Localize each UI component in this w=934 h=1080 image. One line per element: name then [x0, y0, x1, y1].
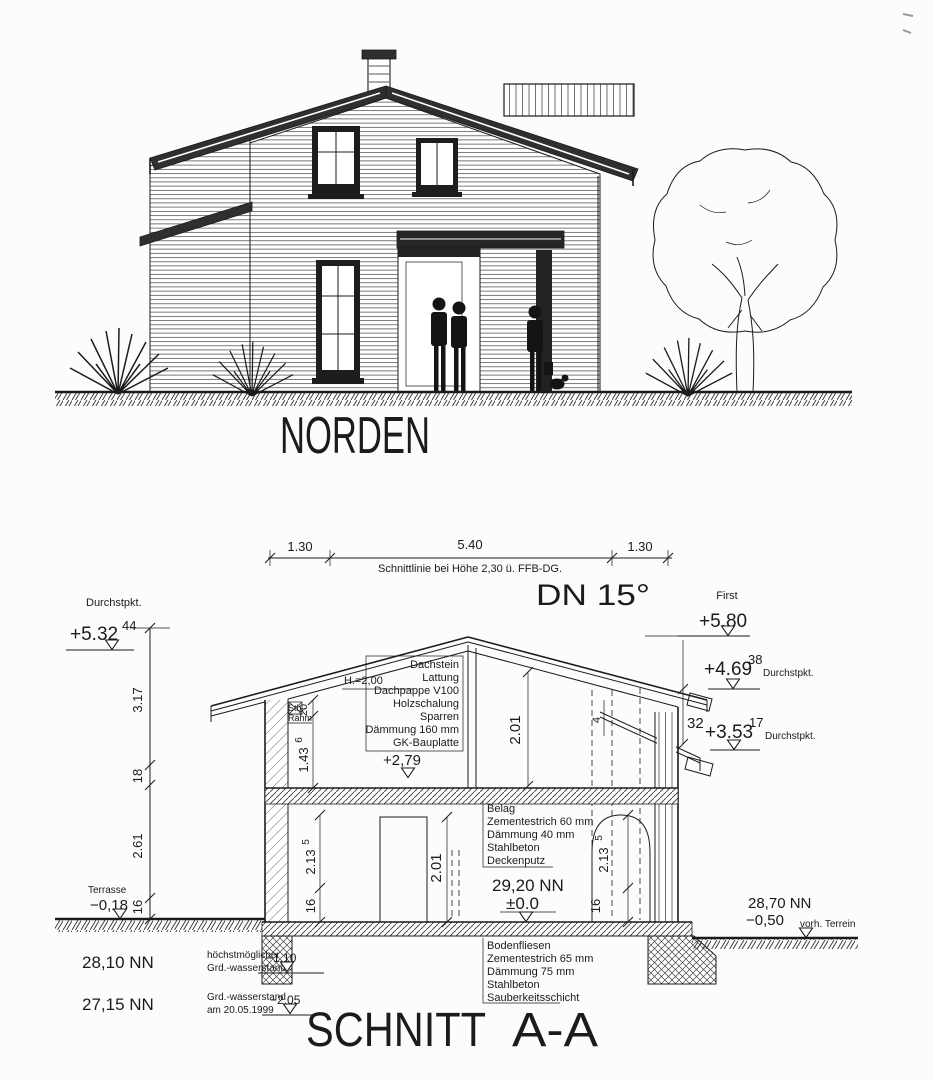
level-marker-triangle	[728, 740, 741, 750]
level-label: Durchstpkt.	[763, 668, 814, 679]
level-value: 27,15 NN	[82, 995, 154, 1014]
section-line-note: Schnittlinie bei Höhe 2,30 ü. FFB-DG.	[378, 563, 562, 575]
scan-artifact	[903, 14, 913, 33]
dim-label: 32	[687, 715, 704, 732]
callout-line: Sparren	[420, 711, 459, 723]
window-upper-right	[412, 138, 462, 197]
dim-32: 32	[678, 640, 704, 749]
dim-label: 2.13	[303, 849, 318, 874]
level-label: Durchstpkt.	[86, 597, 142, 609]
dim-label: 2.61	[130, 833, 145, 858]
section-title: SCHNITT	[306, 1004, 486, 1057]
top-dimension-line: 1.30 5.40 1.30 Schnittlinie bei Höhe 2,3…	[265, 537, 673, 575]
callout-line: GK-Bauplatte	[393, 737, 459, 749]
callout-line: Dämmung 40 mm	[487, 829, 574, 841]
level-marker-triangle	[402, 768, 415, 778]
dim-label: 16	[130, 900, 145, 914]
callout-line: Stahlbeton	[487, 842, 540, 854]
callout-line: Sauberkeitsschicht	[487, 992, 579, 1004]
callout-line: Dämmung 160 mm	[365, 724, 459, 736]
upper-roof-band	[504, 84, 634, 116]
level-marker-first: First +5.80	[645, 590, 750, 636]
window-lower-left	[312, 260, 364, 384]
elevation-title: NORDEN	[280, 407, 430, 465]
floor-construction-callout: Bodenfliesen Zementestrich 65 mm Dämmung…	[483, 938, 593, 1004]
ceiling-construction-callout: Belag Zementestrich 60 mm Dämmung 40 mm …	[483, 801, 593, 867]
level-value: 28,10 NN	[82, 953, 154, 972]
callout-line: Lattung	[422, 672, 459, 684]
callout-line: Deckenputz	[487, 855, 545, 867]
roof-pitch-label: DN 15°	[536, 579, 650, 612]
level-label: Durchstpkt.	[765, 731, 816, 742]
level-marker-left: Durchstpkt. +5.32 44	[66, 597, 142, 650]
section-title-suffix: A-A	[512, 1004, 598, 1057]
dim-label: 2.01	[507, 715, 524, 744]
dim-label: 1.43	[296, 747, 311, 772]
level-note: am 20.05.1999	[207, 1005, 274, 1016]
dim-label: 16	[588, 899, 603, 913]
level-value: +4.69	[704, 659, 752, 680]
level-marker-right-1: +4.69 38 Durchstpkt.	[704, 652, 814, 689]
level-marker-triangle	[800, 928, 813, 938]
callout-line: Dämmung 75 mm	[487, 966, 574, 978]
callout-line: Zementestrich 65 mm	[487, 953, 593, 965]
dim-label: 1.30	[627, 539, 652, 554]
dim-label: 18	[130, 769, 145, 783]
level-value: +2,79	[383, 752, 421, 769]
left-dimension-chain: 3.17 18 2.61 16	[130, 623, 170, 924]
level-superscript: 17	[749, 715, 763, 730]
dim-label: 2.13	[596, 847, 611, 872]
callout-line: Zementestrich 60 mm	[487, 816, 593, 828]
ground-level-marker: 29,20 NN ±0.0	[492, 876, 564, 922]
dim-label: 2.01	[428, 853, 445, 882]
dim-superscript: 6	[294, 737, 305, 743]
callout-line: Bodenfliesen	[487, 940, 551, 952]
callout-line: Dachstein	[410, 659, 459, 671]
dim-superscript: 5	[301, 839, 312, 845]
level-marker-triangle	[727, 679, 740, 689]
ground-line	[55, 392, 852, 406]
level-label: Terrasse	[88, 885, 127, 896]
attic-level-marker: +2,79	[383, 752, 421, 778]
drawing-canvas: NORDEN 1.30 5.40 1.30 Schnittlinie bei H…	[0, 0, 934, 1080]
level-marker-triangle	[284, 1004, 297, 1014]
groundwater-measured: 27,15 NN Grd.-wasserstand am 20.05.1999 …	[82, 992, 328, 1016]
roof-construction-callout: Dachstein Lattung Dachpappe V100 Holzsch…	[365, 656, 463, 751]
grass-tuft	[646, 338, 732, 396]
callout-line: Holzschalung	[393, 698, 459, 710]
dim-label: 4	[591, 717, 603, 723]
callout-line: Belag	[487, 803, 515, 815]
section-drawing: 1.30 5.40 1.30 Schnittlinie bei Höhe 2,3…	[55, 537, 858, 1057]
entrance-canopy	[397, 231, 564, 248]
level-value: 28,70 NN	[748, 895, 811, 912]
level-superscript: 38	[748, 652, 762, 667]
groundwater-high: 28,10 NN höchstmöglicher Grd.-wasserstan…	[82, 950, 324, 974]
dim-superscript: 5	[594, 835, 605, 841]
dim-label: 1.30	[287, 539, 312, 554]
level-superscript: 44	[122, 618, 136, 633]
level-marker-right-2: +3.53 17 Durchstpkt.	[705, 715, 816, 750]
architectural-drawing-sheet: NORDEN 1.30 5.40 1.30 Schnittlinie bei H…	[0, 0, 934, 1080]
level-value: 29,20 NN	[492, 876, 564, 895]
window-upper-left	[308, 126, 364, 199]
level-value: ±0.0	[506, 894, 539, 913]
callout-line: Dachpappe V100	[374, 685, 459, 697]
level-label: First	[716, 590, 737, 602]
level-value: −0,50	[746, 912, 784, 929]
dim-label: 3.17	[130, 687, 145, 712]
terrace-level-marker: Terrasse −0,18	[88, 885, 128, 919]
dim-label: 5.40	[457, 537, 482, 552]
callout-line: Stahlbeton	[487, 979, 540, 991]
north-elevation-drawing: NORDEN	[55, 50, 852, 465]
level-marker-triangle	[520, 912, 533, 922]
dim-label: 20	[298, 704, 310, 716]
dim-label: 16	[303, 899, 318, 913]
terrain-level-marker: 28,70 NN −0,50 vorh. Terrein	[746, 895, 855, 938]
